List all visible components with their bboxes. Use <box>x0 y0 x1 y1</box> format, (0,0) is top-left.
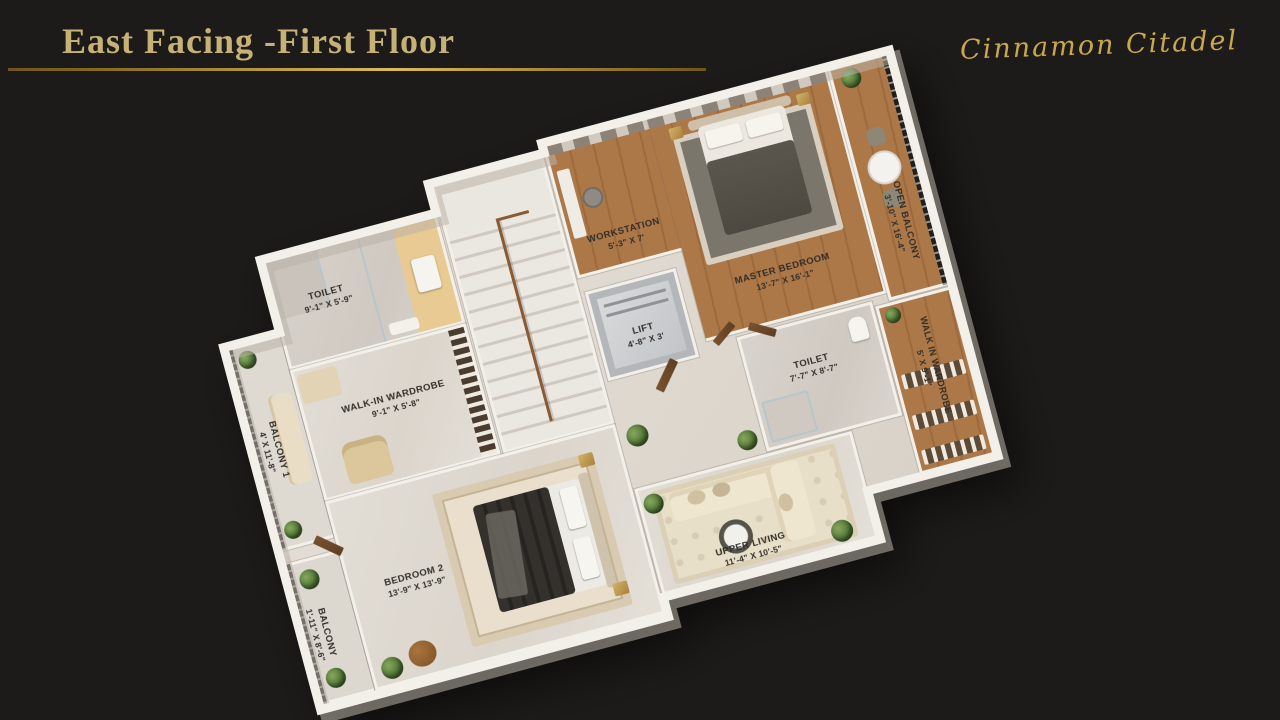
slide-header: East Facing -First Floor <box>0 0 720 71</box>
plant <box>883 305 903 325</box>
page-title: East Facing -First Floor <box>62 20 720 62</box>
plant <box>282 519 304 541</box>
brand-logo: Cinnamon Citadel <box>959 25 1238 66</box>
plant <box>839 66 863 90</box>
label-toilet-master: Toilet 7'-7" X 8'-7" <box>757 342 869 393</box>
floorplan: Workstation 5'-3" X 7' Master Bedroom 13… <box>194 50 1016 710</box>
stair-railing <box>496 218 553 422</box>
label-wardrobe-2: Walk-In Wardrobe 9'-1" X 5'-8" <box>334 376 456 430</box>
wardrobe-wall-panels <box>545 118 651 156</box>
label-bedroom-2: Bedroom 2 13'-9" X 13'-9" <box>359 556 473 608</box>
balcony-chair <box>865 125 887 147</box>
dresser <box>296 365 342 404</box>
desk-chair <box>582 187 603 208</box>
stair-landing <box>435 159 554 237</box>
pouf <box>406 637 440 669</box>
shower-area <box>761 390 818 443</box>
plant <box>379 654 406 681</box>
plant <box>237 349 259 371</box>
armchair <box>340 433 395 485</box>
toilet-fixture <box>847 315 871 343</box>
label-workstation: Workstation 5'-3" X 7' <box>572 212 678 261</box>
vanity-counter <box>388 316 420 335</box>
title-underline <box>8 68 706 71</box>
